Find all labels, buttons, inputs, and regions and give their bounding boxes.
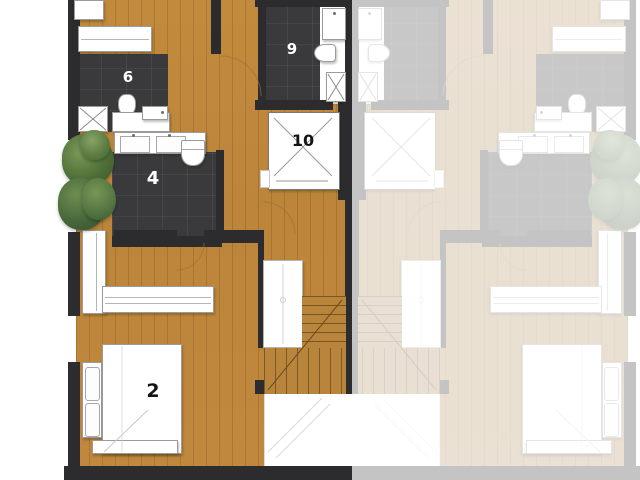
elevator-shaft [364,112,436,190]
room-4-label: 4 [138,170,168,188]
tile-floor-room-4 [112,152,216,238]
wall [64,466,352,480]
headboard-side [602,362,622,438]
wall [68,232,80,316]
shelf [552,26,626,52]
stairs-lower-flight [358,348,440,394]
wall [480,150,488,238]
tile-floor-room-4 [488,152,592,238]
unit-faded-mirror: 6 9 4 10 2 [352,0,640,480]
trees [582,132,640,238]
elevator-notch [434,170,444,188]
wall [216,150,224,238]
shelf [78,26,152,52]
wall [483,0,493,54]
wall [68,362,80,468]
wall [624,232,636,316]
wall [359,0,449,7]
stairs-upper-flight [358,296,402,348]
desk-shelf [490,286,602,313]
shower-icon [596,106,626,132]
bathtub-icon [322,8,346,40]
unit-active: 6 9 4 10 2 [64,0,352,480]
stairs-upper-flight [302,296,346,348]
headboard-side [82,362,102,438]
terrace [264,394,346,466]
wall [352,466,640,480]
wall [211,0,221,54]
bed [522,344,602,454]
trees [58,132,122,238]
shower-icon [326,72,346,102]
room-2-label: 2 [138,382,168,401]
cabinet [600,0,630,20]
wall [624,362,636,468]
tree-icon [588,178,622,220]
wall [439,380,449,394]
toilet-icon [499,140,523,166]
toilet-icon [314,44,336,62]
wall [258,0,266,108]
sink-icon [142,106,168,120]
tree-icon [82,178,116,220]
cabinet [74,0,104,20]
floor-plan-canvas: 6 9 4 10 2 [0,0,640,480]
wall [255,0,345,7]
door-panel [401,260,441,348]
room-9-label: 9 [278,42,306,57]
elevator-notch [260,170,270,188]
wall [112,236,222,247]
door-panel [263,260,303,348]
party-wall [345,0,352,394]
shower-icon [78,106,108,132]
room-6-label: 6 [114,70,142,85]
toilet-icon [368,44,390,62]
sink-icon [536,106,562,120]
bed-bench [526,440,612,454]
wall [482,236,592,247]
desk-shelf [102,286,214,313]
tree-icon [80,130,110,160]
bed-bench [92,440,178,454]
tree-icon [594,130,624,160]
wall [438,0,446,108]
toilet-icon [181,140,205,166]
bathtub-icon [358,8,382,40]
room-10-label: 10 [286,133,320,149]
terrace [358,394,440,466]
elevator-shaft [268,112,340,190]
wall [255,100,333,110]
shower-icon [358,72,378,102]
wall [371,100,449,110]
stairs-lower-flight [264,348,346,394]
